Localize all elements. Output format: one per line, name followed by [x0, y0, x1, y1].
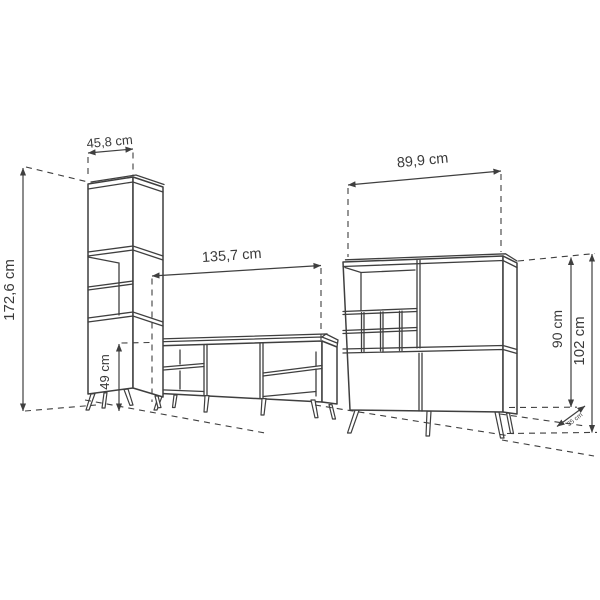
- bar-cabinet-total-height-label: 102 cm: [571, 316, 588, 365]
- tv-stand: [152, 334, 338, 419]
- tall-cabinet-width-dimension: 45,8 cm: [86, 132, 133, 179]
- bar-cabinet-body-height-label: 90 cm: [549, 310, 565, 348]
- tall-cabinet-height-dimension: 172,6 cm: [1, 167, 96, 411]
- bar-cabinet-width-label: 89,9 cm: [396, 151, 449, 172]
- tall-cabinet-width-label: 45,8 cm: [86, 132, 133, 151]
- tv-stand-width-label: 135,7 cm: [201, 246, 262, 266]
- tall-cabinet-height-label: 172,6 cm: [1, 259, 18, 321]
- bar-cabinet: [343, 254, 517, 438]
- diagram-svg: 45,8 cm 172,6 cm 135,7 cm 49 cm 89,: [0, 0, 600, 600]
- bar-cabinet-width-dimension: 89,9 cm: [348, 151, 501, 257]
- tv-stand-height-label: 49 cm: [97, 354, 112, 389]
- furniture-dimension-diagram: 45,8 cm 172,6 cm 135,7 cm 49 cm 89,: [0, 0, 600, 600]
